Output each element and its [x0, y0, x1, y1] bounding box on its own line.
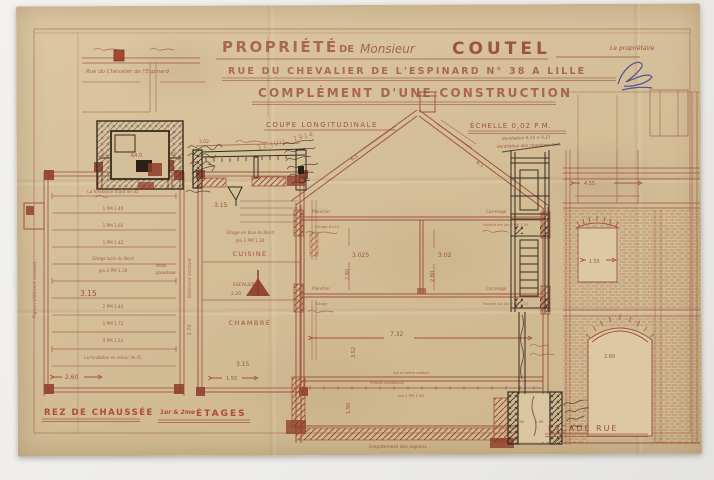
chimney-detail-plan: .45 64.0 .45 — [97, 121, 183, 190]
title-subtitle: COMPLÉMENT D'UNE CONSTRUCTION — [258, 85, 572, 100]
tile-label-2: Carrelage — [486, 286, 507, 291]
facade-chimney — [650, 90, 688, 136]
facade-elevation: 4.55 1.55 2.60 FAÇADE RUE — [545, 90, 700, 445]
room-width-dim: 7.32 — [390, 331, 404, 338]
roof-dim-right: 6.1 — [475, 160, 485, 170]
foundation-note: Petites fondations — [370, 380, 404, 385]
drawing-canvas: Rue du Chevalier de l'Espinard PROPRIÉTÉ… — [0, 0, 714, 480]
site-plan-sketch: Rue du Chevalier de l'Espinard — [82, 48, 205, 112]
owner-signature — [618, 62, 652, 90]
site-building-marker — [114, 50, 124, 61]
roof-dim-left: 6.1 — [350, 153, 360, 163]
upper-floor-plan: 3.15 Gitage en bois du Nord Jon 2 PM 1.3… — [196, 170, 318, 396]
gp-door-note-2: pareclose — [156, 270, 176, 275]
gp-right-margin-dim: 3.70 — [187, 324, 193, 335]
room-label-kitchen: CUISINE — [233, 250, 268, 258]
window-opening — [578, 228, 617, 282]
up-gitage-note: Gitage en bois du Nord — [226, 230, 275, 235]
facade-caption: FAÇADE RUE — [548, 424, 618, 433]
room-label-bedroom: CHAMBRE — [228, 319, 271, 327]
signature-flourish — [618, 62, 652, 90]
scale-note: ÉCHELLE 0,02 P.M. — [470, 121, 552, 130]
ground-floor-plan: La fondation filant de 45 1 PM 1.40 1 PM… — [24, 160, 193, 396]
facade-window-dim: 1.55 — [589, 259, 600, 265]
title-monsieur: Monsieur — [360, 42, 416, 56]
footing-note: Empatement des pignons — [369, 444, 427, 450]
cd-dim-mid: 64.0 — [131, 153, 142, 159]
upper-floors-caption-prefix: 1er & 2me — [160, 409, 195, 416]
height-dim-left: 2.80 — [345, 269, 351, 280]
pit-dim-2: 2.45 — [535, 419, 544, 424]
gp-jon-note: Jon 2 PM 1.30 — [98, 268, 128, 273]
gitage-label-2: Gitage — [315, 301, 328, 306]
gp-joist-2: 1 PM 1.42 — [103, 240, 124, 245]
gitage-label-1: Gitage 8×23 — [315, 224, 340, 229]
beam-dim: 3.02 — [199, 139, 209, 145]
gp-bottom-note: La fondation en retour de 45 — [84, 355, 142, 360]
up-bottom-dim: 3.15 — [236, 361, 250, 368]
gp-joist-5: 4 PM 1.52 — [103, 338, 124, 343]
gp-left-margin-note: Pignon bâtiment existant — [31, 262, 38, 319]
cellar-height-dim: 1.90 — [346, 403, 352, 414]
up-bottom-dim-2: 1.55 — [226, 376, 237, 382]
gp-joist-3: 2 PM 1.40 — [103, 304, 124, 309]
wall-section-detail — [502, 144, 560, 398]
up-top-dim: 3.15 — [214, 202, 228, 209]
cornice-lines — [563, 168, 700, 208]
up-jon-note: Jon 2 PM 1.30 — [235, 238, 265, 243]
up-stair-dim: 2.20 — [231, 291, 241, 297]
facade-arch-dim: 2.60 — [604, 354, 615, 360]
street-label: Rue du Chevalier de l'Espinard — [86, 69, 169, 75]
upper-floors-caption: ÉTAGES — [196, 407, 247, 419]
owner-note: Le propriétaire — [610, 45, 655, 52]
room-height-dim: 3.52 — [351, 347, 357, 358]
soil-note: Sol en terre battue — [393, 370, 430, 375]
floor-label-1: Plancher — [312, 209, 330, 214]
section-caption: COUPE LONGITUDINALE — [266, 121, 378, 129]
gp-top-note: La fondation filant de 45 — [87, 189, 139, 194]
gp-joist-0: 1 PM 1.40 — [103, 206, 124, 211]
scanned-drawing-sheet: Rue du Chevalier de l'Espinard PROPRIÉTÉ… — [0, 0, 714, 480]
title-owner-name: COUTEL — [452, 39, 551, 59]
title-de: DE — [339, 44, 354, 55]
gp-bottom-dim: 2.60 — [65, 374, 79, 381]
gp-width-dim: 3.15 — [80, 289, 97, 298]
pit-dim-1: .90 — [518, 419, 525, 424]
bay-dim-right: 3.02 — [438, 252, 452, 259]
height-dim-right: 2.80 — [430, 271, 436, 282]
ground-floor-caption: REZ DE CHAUSSÉE — [44, 406, 154, 418]
cd-dim-left: .45 — [100, 152, 107, 158]
floor-label-2: Plancher — [312, 286, 330, 291]
facade-upper-dim: 4.55 — [584, 181, 595, 187]
gp-joist-1: 1 PM 1.60 — [103, 223, 124, 228]
tile-label-1: Carrelage — [486, 209, 507, 214]
gp-right-margin-note: Bâtiment existant — [186, 258, 193, 298]
cd-dim-right: .45 — [169, 152, 176, 158]
vent-note-1: Ventilation 0,15 × 0,15 — [502, 134, 551, 141]
title-property: PROPRIÉTÉ — [222, 37, 339, 56]
bay-dim-left: 3.025 — [352, 252, 369, 259]
brickwork — [563, 210, 578, 310]
gp-gitage-note: Gitage bois du Nord — [92, 256, 134, 261]
cellar-joist-note: Jon 2 PM 1.40 — [397, 393, 424, 398]
title-address: RUE DU CHEVALIER DE L'ESPINARD N° 38 A L… — [228, 66, 586, 77]
captions: REZ DE CHAUSSÉE 1er & 2me ÉTAGES — [42, 406, 250, 423]
room-label-stair: ESCALIER — [233, 282, 255, 288]
gp-door-note-1: Porte — [156, 263, 167, 268]
gp-joist-4: 1 PM 1.72 — [103, 321, 124, 326]
arch-opening — [588, 328, 652, 436]
